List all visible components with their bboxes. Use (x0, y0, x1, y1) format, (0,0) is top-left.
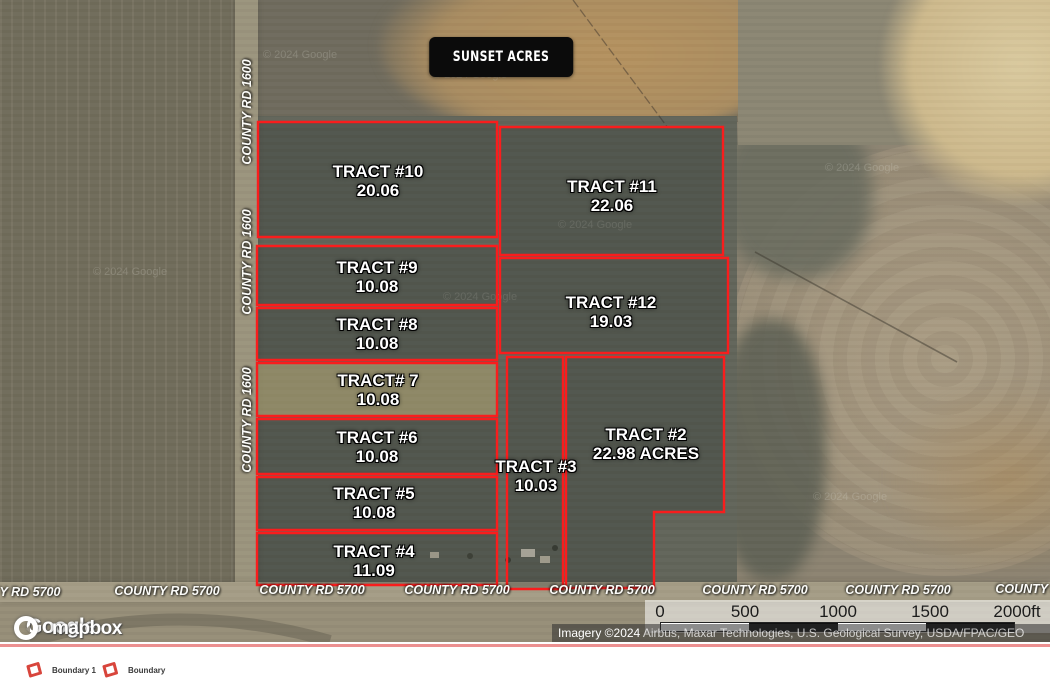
page: © 2024 Google© 2024 Google© 2024 Google©… (0, 0, 1050, 700)
road-label-county-rd-5700: COUNTY RD 5700 (259, 583, 364, 597)
tract-label: TRACT #1122.06 (567, 177, 657, 215)
boundary-polygon-icon (24, 661, 44, 679)
scale-tick: 0 (655, 602, 664, 622)
legend-item-1[interactable]: Boundary 1 (24, 661, 96, 679)
road-label-county-rd-1600: COUNTY RD 1600 (240, 59, 254, 164)
road-label-county-rd-5700: COUNTY RD 5700 (702, 583, 807, 597)
boundary-polygon-icon (100, 661, 120, 679)
pivot-arm-line (755, 252, 957, 362)
tract-label: TRACT #222.98 ACRES (593, 425, 699, 463)
mapbox-icon[interactable] (14, 616, 38, 640)
legend-bar: Boundary 1Boundary (0, 647, 1050, 700)
legend-item-2[interactable]: Boundary (100, 661, 165, 679)
subdivision-title-badge: SUNSET ACRES (429, 37, 573, 77)
tract-label: TRACT #1020.06 (333, 162, 424, 200)
tract-label: TRACT# 710.08 (337, 371, 418, 409)
tract-label: TRACT #610.08 (336, 428, 417, 466)
scale-tick: 500 (731, 602, 759, 622)
legend-label: Boundary 1 (52, 666, 96, 675)
subdivision-title: SUNSET ACRES (453, 49, 549, 65)
tract-label: TRACT #510.08 (333, 484, 414, 522)
map-provider-logos: Google mapbox (12, 612, 312, 642)
road-label-county-rd-5700: COUNTY RD 5700 (995, 582, 1050, 596)
tract-label: TRACT #1219.03 (566, 293, 657, 331)
tract-label: TRACT #411.09 (333, 542, 414, 580)
imagery-attribution: Imagery ©2024 Airbus, Maxar Technologies… (552, 624, 1050, 642)
road-label-county-rd-5700: COUNTY RD 5700 (845, 583, 950, 597)
road-label-county-rd-5700: COUNTY RD 5700 (114, 584, 219, 598)
road-label-county-rd-5700: COUNTY RD 5700 (549, 583, 654, 597)
scale-tick: 2000ft (993, 602, 1040, 622)
scale-tick: 1500 (911, 602, 949, 622)
road-label-county-rd-5700: Y RD 5700 (0, 585, 60, 599)
attribution-sources: Airbus, Maxar Technologies, U.S. Geologi… (640, 626, 1024, 640)
road-label-county-rd-5700: COUNTY RD 5700 (404, 583, 509, 597)
scale-tick: 1000 (819, 602, 857, 622)
tract-label: TRACT #310.03 (495, 457, 576, 495)
tract-boundary-8[interactable] (566, 357, 724, 588)
boundary-overlay (0, 0, 1050, 642)
legend-label: Boundary (128, 666, 165, 675)
tract-label: TRACT #810.08 (336, 315, 417, 353)
road-label-county-rd-1600: COUNTY RD 1600 (240, 209, 254, 314)
power-line (573, 0, 668, 128)
road-label-county-rd-1600: COUNTY RD 1600 (240, 367, 254, 472)
tract-label: TRACT #910.08 (336, 258, 417, 296)
attribution-prefix: Imagery ©2024 (558, 626, 640, 640)
map-canvas[interactable]: © 2024 Google© 2024 Google© 2024 Google©… (0, 0, 1050, 642)
mapbox-logo[interactable]: mapbox (52, 618, 122, 640)
